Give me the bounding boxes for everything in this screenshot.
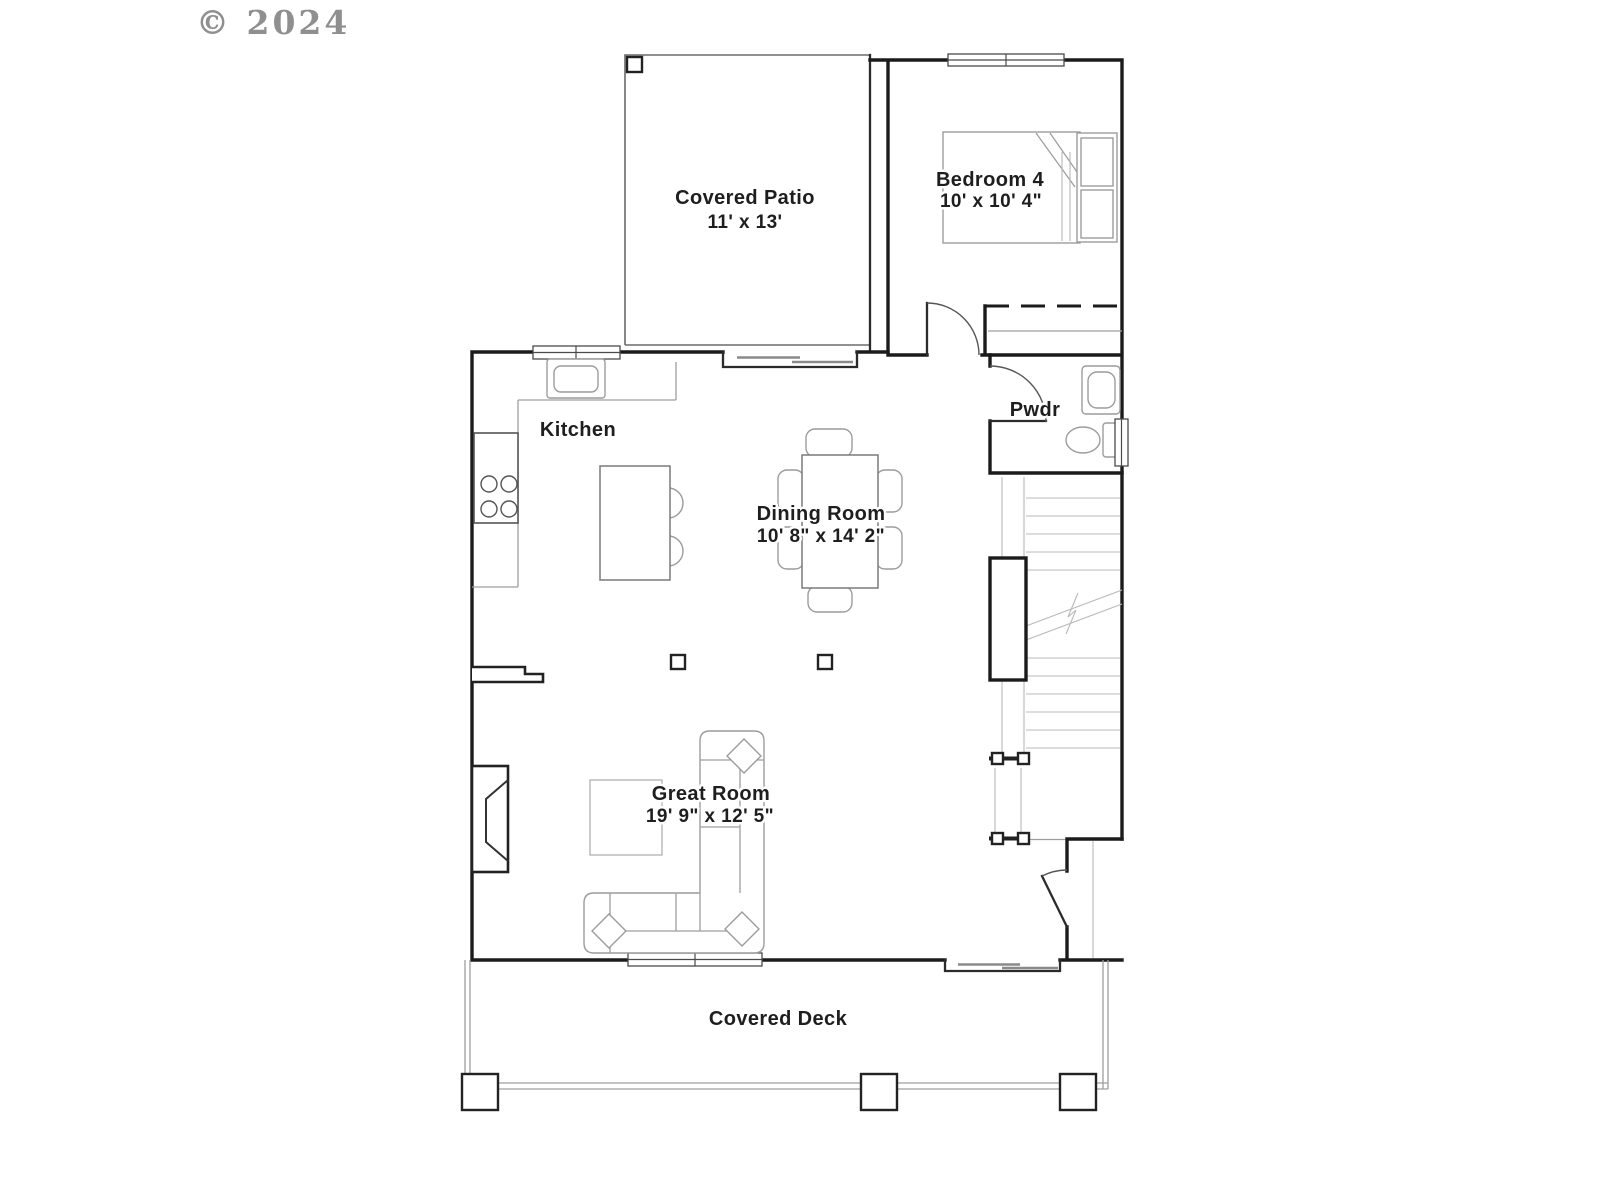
deck-post — [462, 1074, 498, 1110]
deck-slider-door — [945, 960, 1060, 971]
toilet-icon — [1066, 423, 1120, 457]
deck-label: Covered Deck — [709, 1008, 848, 1030]
stair-treads-lower — [1026, 658, 1120, 748]
stair-break-zigzag — [1066, 593, 1078, 634]
kitchen: Kitchen — [472, 359, 683, 587]
cooktop-icon — [474, 433, 518, 523]
railing-post — [1018, 833, 1029, 844]
railing-post — [992, 833, 1003, 844]
kitchen-label: Kitchen — [540, 419, 616, 441]
stair-treads-upper — [1026, 498, 1120, 570]
half-wall-stub — [472, 667, 543, 682]
column-post — [671, 655, 685, 669]
powder-label: Pwdr — [1010, 399, 1061, 421]
kitchen-island-icon — [600, 466, 683, 580]
railing-post — [1018, 753, 1029, 764]
patio-slider-door — [723, 352, 857, 367]
sink-icon — [1082, 366, 1120, 414]
kitchen-window — [533, 346, 620, 359]
covered-patio: Covered Patio 11' x 13' — [625, 55, 870, 352]
stair-wall-block — [990, 558, 1026, 680]
great-room-label: Great Room — [652, 783, 770, 805]
patio-dims: 11' x 13' — [708, 212, 783, 233]
entry-door-leaf — [1042, 876, 1067, 927]
patio-post — [627, 57, 642, 72]
great-room: Great Room 19' 9" x 12' 5" — [584, 731, 774, 953]
dining-room: Dining Room 10' 8" x 14' 2" — [757, 429, 902, 612]
patio-label: Covered Patio — [675, 187, 815, 209]
railing-post — [992, 753, 1003, 764]
column-post — [818, 655, 832, 669]
floor-plan-drawing: © 2024 Covered Patio 11' x 13' — [0, 0, 1600, 1200]
powder-window — [1115, 419, 1128, 466]
powder-room: Pwdr — [990, 355, 1128, 473]
dining-dims: 10' 8" x 14' 2" — [757, 526, 885, 547]
bedroom-dims: 10' x 10' 4" — [940, 191, 1042, 212]
fireplace-icon — [472, 766, 508, 872]
bedroom-label: Bedroom 4 — [936, 169, 1045, 191]
staircase — [989, 477, 1122, 844]
floor-plan-page: © 2024 Covered Patio 11' x 13' — [0, 0, 1600, 1200]
great-room-dims: 19' 9" x 12' 5" — [646, 806, 774, 827]
deck-post — [1060, 1074, 1096, 1110]
stair-side-lines — [995, 477, 1024, 833]
kitchen-sink-icon — [547, 359, 605, 398]
bedroom-window — [948, 54, 1064, 66]
covered-deck: Covered Deck — [462, 960, 1108, 1110]
entry-door-arc — [1042, 870, 1067, 876]
deck-post — [861, 1074, 897, 1110]
great-room-window — [628, 953, 762, 966]
copyright-watermark: © 2024 — [196, 3, 350, 42]
bedroom-door-arc — [927, 303, 979, 355]
dining-label: Dining Room — [757, 503, 886, 525]
